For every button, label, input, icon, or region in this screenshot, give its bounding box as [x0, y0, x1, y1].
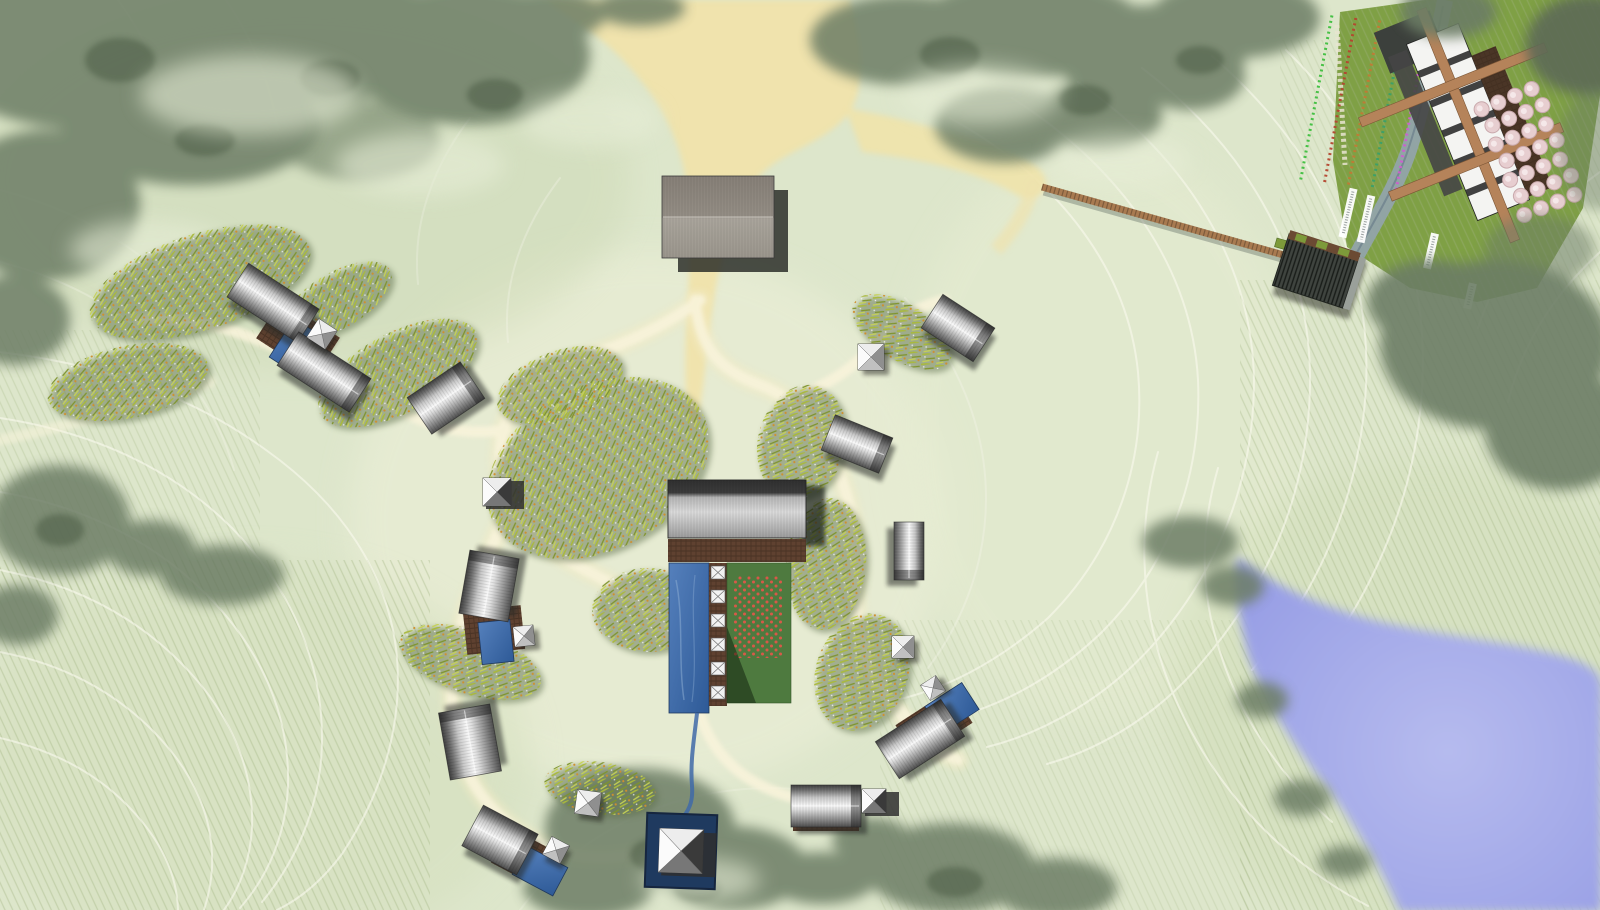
- cottage-7: [791, 785, 867, 834]
- planting-grid: [733, 576, 783, 658]
- masterplan-canvas: [0, 0, 1600, 910]
- pyramid-pavilion: [483, 478, 524, 509]
- pyramid-pavilion: [862, 789, 899, 816]
- cottage-4: [459, 544, 527, 623]
- plunge-pool: [478, 619, 514, 664]
- main-swimming-pool: [669, 563, 709, 713]
- pond-pavilion: [645, 813, 718, 889]
- site-plan-map: [0, 0, 1600, 910]
- arrival-building: [662, 176, 788, 272]
- cottage-9: [887, 522, 924, 586]
